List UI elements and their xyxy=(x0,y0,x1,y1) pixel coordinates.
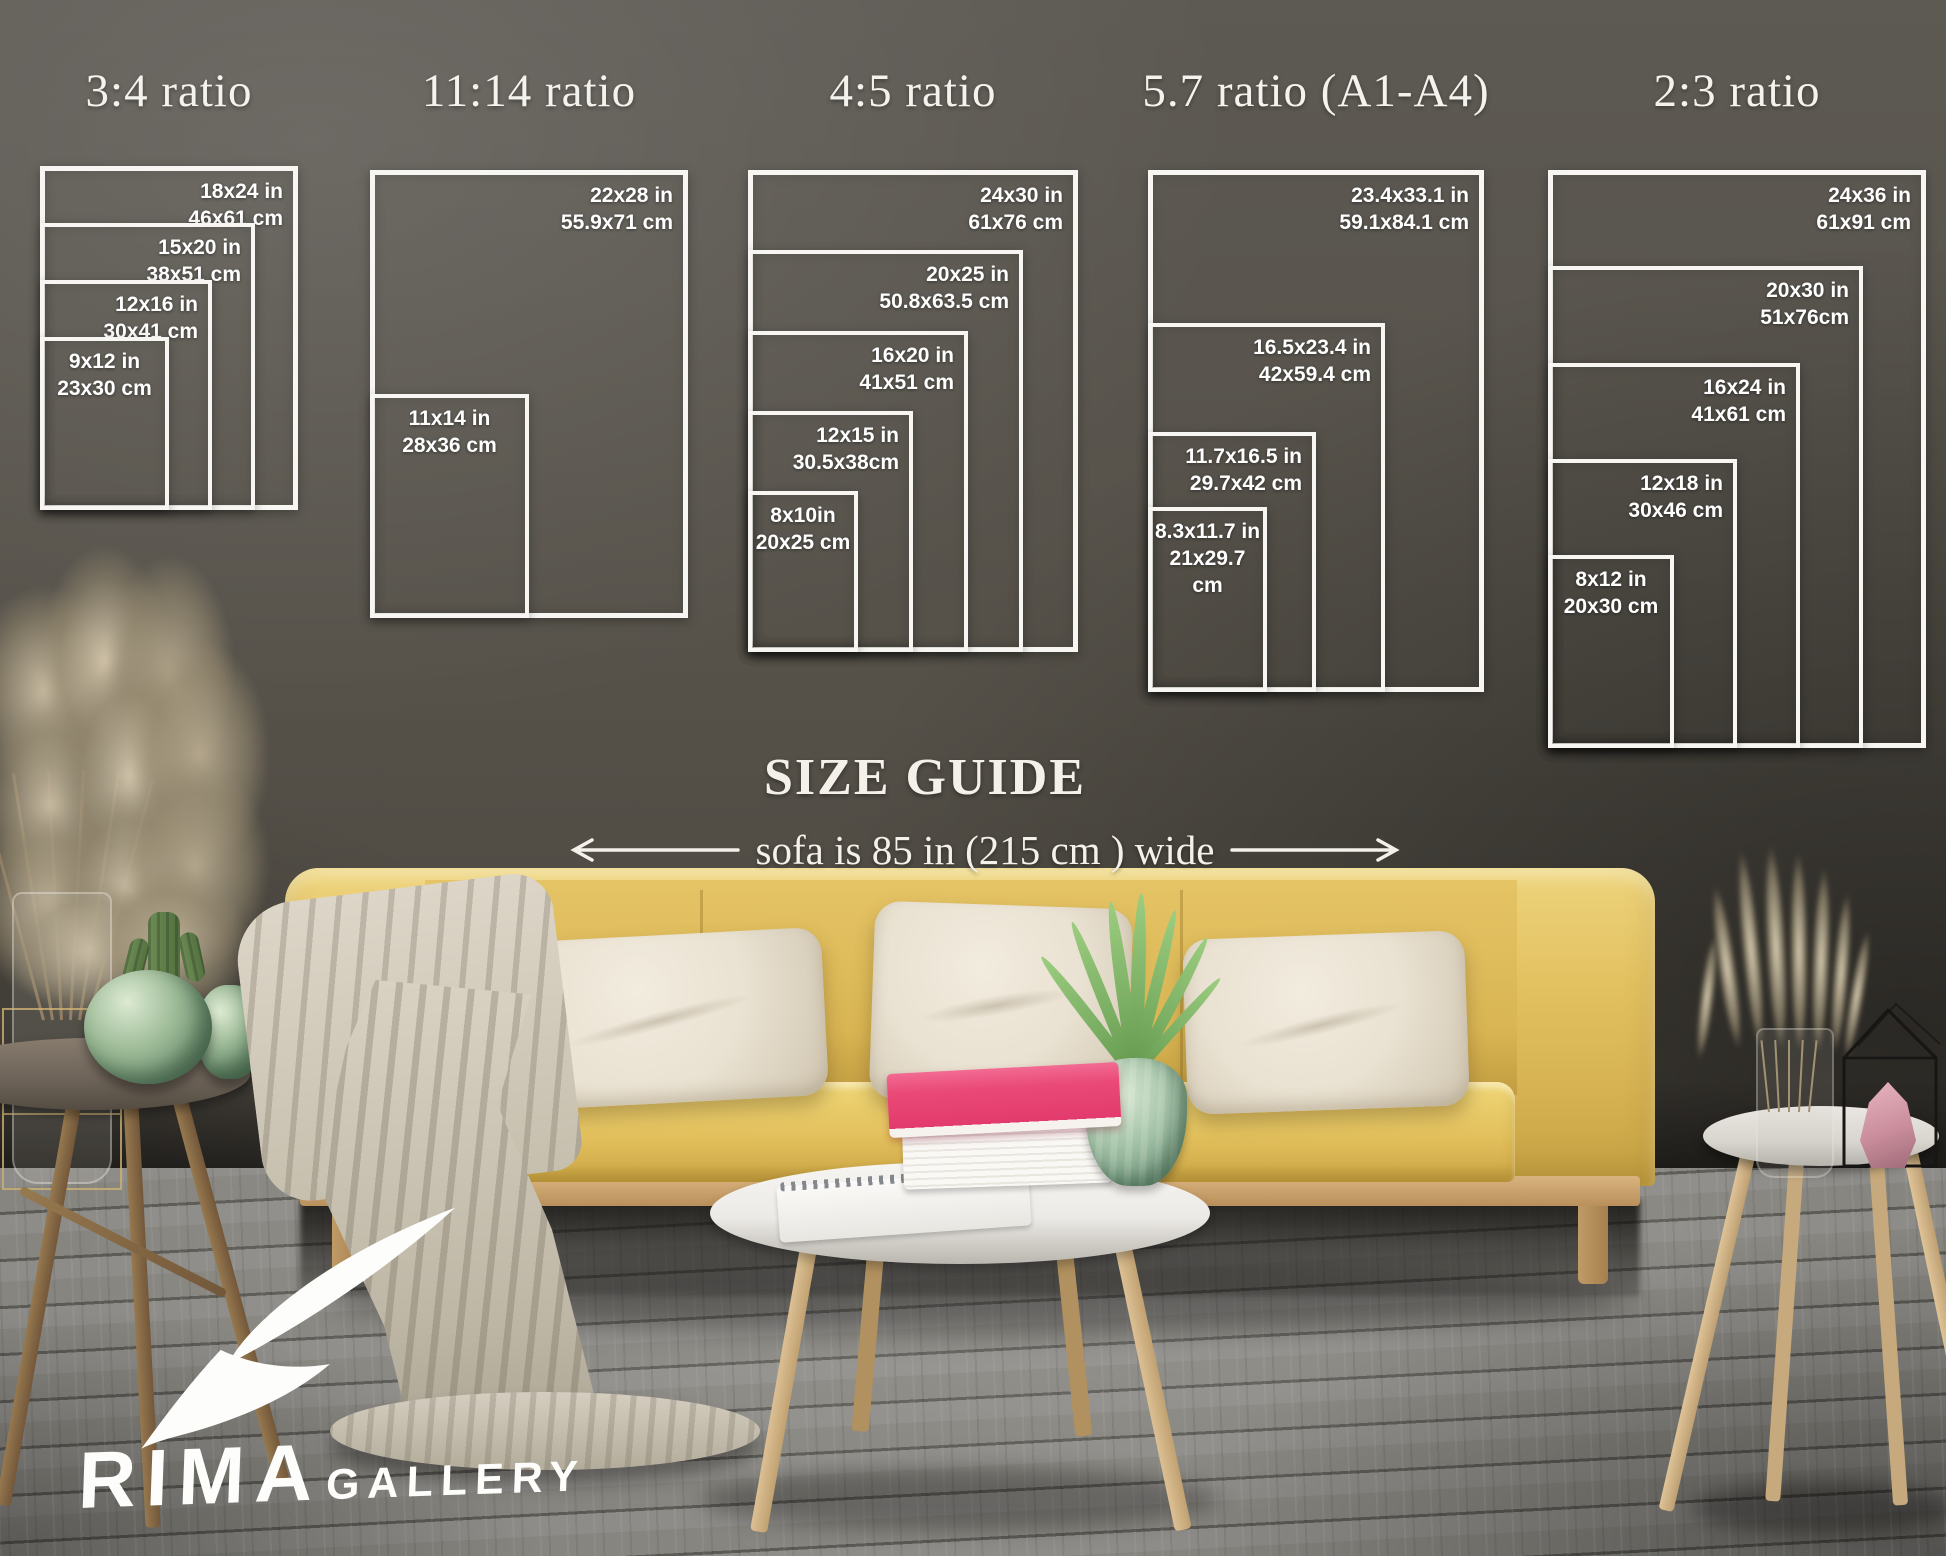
pillow xyxy=(1182,930,1470,1115)
size-inches: 12x18 in xyxy=(1628,470,1723,497)
size-centimeters: 61x76 cm xyxy=(968,209,1063,236)
size-centimeters: 20x30 cm xyxy=(1552,593,1670,620)
size-inches: 9x12 in xyxy=(44,348,165,375)
size-inches: 16x20 in xyxy=(859,342,954,369)
sofa-leg xyxy=(1578,1204,1608,1284)
size-label: 16x20 in41x51 cm xyxy=(859,342,954,396)
size-guide-poster: 3:4 ratio18x24 in46x61 cm15x20 in38x51 c… xyxy=(0,0,1946,1556)
glass-stalk-vase xyxy=(1756,1028,1834,1178)
size-label: 23.4x33.1 in59.1x84.1 cm xyxy=(1339,182,1469,236)
size-label: 16x24 in41x61 cm xyxy=(1691,374,1786,428)
ratio-group-title: 4:5 ratio xyxy=(683,64,1143,118)
logo-suffix-text: GALLERY xyxy=(325,1455,586,1507)
size-centimeters: 42x59.4 cm xyxy=(1253,361,1371,388)
size-label: 11.7x16.5 in29.7x42 cm xyxy=(1185,443,1302,497)
size-inches: 24x36 in xyxy=(1816,182,1911,209)
size-frame: 8x10in20x25 cm xyxy=(748,491,858,652)
size-inches: 20x30 in xyxy=(1760,277,1849,304)
size-label: 20x30 in51x76cm xyxy=(1760,277,1849,331)
size-centimeters: 51x76cm xyxy=(1760,304,1849,331)
size-centimeters: 55.9x71 cm xyxy=(561,209,673,236)
coffee-table-shadow xyxy=(700,1468,1220,1530)
size-label: 12x15 in30.5x38cm xyxy=(793,422,899,476)
size-label: 24x30 in61x76 cm xyxy=(968,182,1063,236)
pink-book xyxy=(886,1062,1121,1138)
ratio-group-title: 2:3 ratio xyxy=(1507,64,1946,118)
sofa-width-note: sofa is 85 in (215 cm ) wide xyxy=(505,826,1465,874)
size-inches: 8x10in xyxy=(752,502,854,529)
size-inches: 16.5x23.4 in xyxy=(1253,334,1371,361)
size-label: 12x18 in30x46 cm xyxy=(1628,470,1723,524)
size-inches: 11.7x16.5 in xyxy=(1185,443,1302,470)
size-centimeters: 41x51 cm xyxy=(859,369,954,396)
size-centimeters: 29.7x42 cm xyxy=(1185,470,1302,497)
right-arrow-icon xyxy=(1230,837,1410,863)
size-label: 8x10in20x25 cm xyxy=(752,502,854,556)
size-centimeters: 30x46 cm xyxy=(1628,497,1723,524)
size-inches: 16x24 in xyxy=(1691,374,1786,401)
brand-logo: RIMA GALLERY xyxy=(77,1203,587,1521)
size-label: 22x28 in55.9x71 cm xyxy=(561,182,673,236)
size-centimeters: 61x91 cm xyxy=(1816,209,1911,236)
size-centimeters: 30.5x38cm xyxy=(793,449,899,476)
size-inches: 15x20 in xyxy=(146,234,241,261)
size-frame: 11x14 in28x36 cm xyxy=(370,394,529,618)
size-centimeters: 28x36 cm xyxy=(374,432,525,459)
size-centimeters: 21x29.7 cm xyxy=(1152,545,1263,599)
size-centimeters: 50.8x63.5 cm xyxy=(879,288,1009,315)
size-label: 9x12 in23x30 cm xyxy=(44,348,165,402)
size-inches: 23.4x33.1 in xyxy=(1339,182,1469,209)
size-frame: 8x12 in20x30 cm xyxy=(1548,555,1674,748)
green-globe-vase xyxy=(84,970,212,1084)
size-label: 8.3x11.7 in21x29.7 cm xyxy=(1152,518,1263,599)
size-label: 8x12 in20x30 cm xyxy=(1552,566,1670,620)
size-centimeters: 23x30 cm xyxy=(44,375,165,402)
size-inches: 11x14 in xyxy=(374,405,525,432)
ratio-group-title: 5.7 ratio (A1-A4) xyxy=(1086,64,1546,118)
size-label: 20x25 in50.8x63.5 cm xyxy=(879,261,1009,315)
size-guide-heading: SIZE GUIDE xyxy=(625,748,1225,807)
sofa-width-text: sofa is 85 in (215 cm ) wide xyxy=(756,826,1215,874)
logo-brand-text: RIMA xyxy=(77,1432,324,1521)
size-inches: 8x12 in xyxy=(1552,566,1670,593)
size-inches: 12x16 in xyxy=(103,291,198,318)
size-inches: 20x25 in xyxy=(879,261,1009,288)
size-inches: 18x24 in xyxy=(188,178,283,205)
size-frame: 8.3x11.7 in21x29.7 cm xyxy=(1148,507,1267,692)
size-inches: 8.3x11.7 in xyxy=(1152,518,1263,545)
size-inches: 12x15 in xyxy=(793,422,899,449)
left-arrow-icon xyxy=(560,837,740,863)
size-centimeters: 20x25 cm xyxy=(752,529,854,556)
size-label: 11x14 in28x36 cm xyxy=(374,405,525,459)
size-label: 24x36 in61x91 cm xyxy=(1816,182,1911,236)
size-inches: 22x28 in xyxy=(561,182,673,209)
size-centimeters: 59.1x84.1 cm xyxy=(1339,209,1469,236)
size-inches: 24x30 in xyxy=(968,182,1063,209)
swoosh-icon xyxy=(139,1208,457,1451)
size-frame: 9x12 in23x30 cm xyxy=(40,337,169,510)
size-centimeters: 41x61 cm xyxy=(1691,401,1786,428)
size-label: 16.5x23.4 in42x59.4 cm xyxy=(1253,334,1371,388)
stool-shadow xyxy=(1692,1482,1946,1534)
